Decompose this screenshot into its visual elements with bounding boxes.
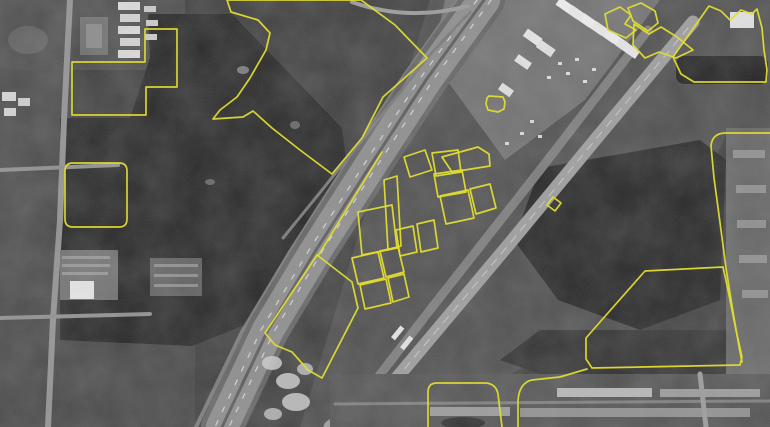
texture-fine [0, 0, 770, 427]
aerial-map-canvas[interactable] [0, 0, 770, 427]
screenshot-root [0, 0, 770, 427]
